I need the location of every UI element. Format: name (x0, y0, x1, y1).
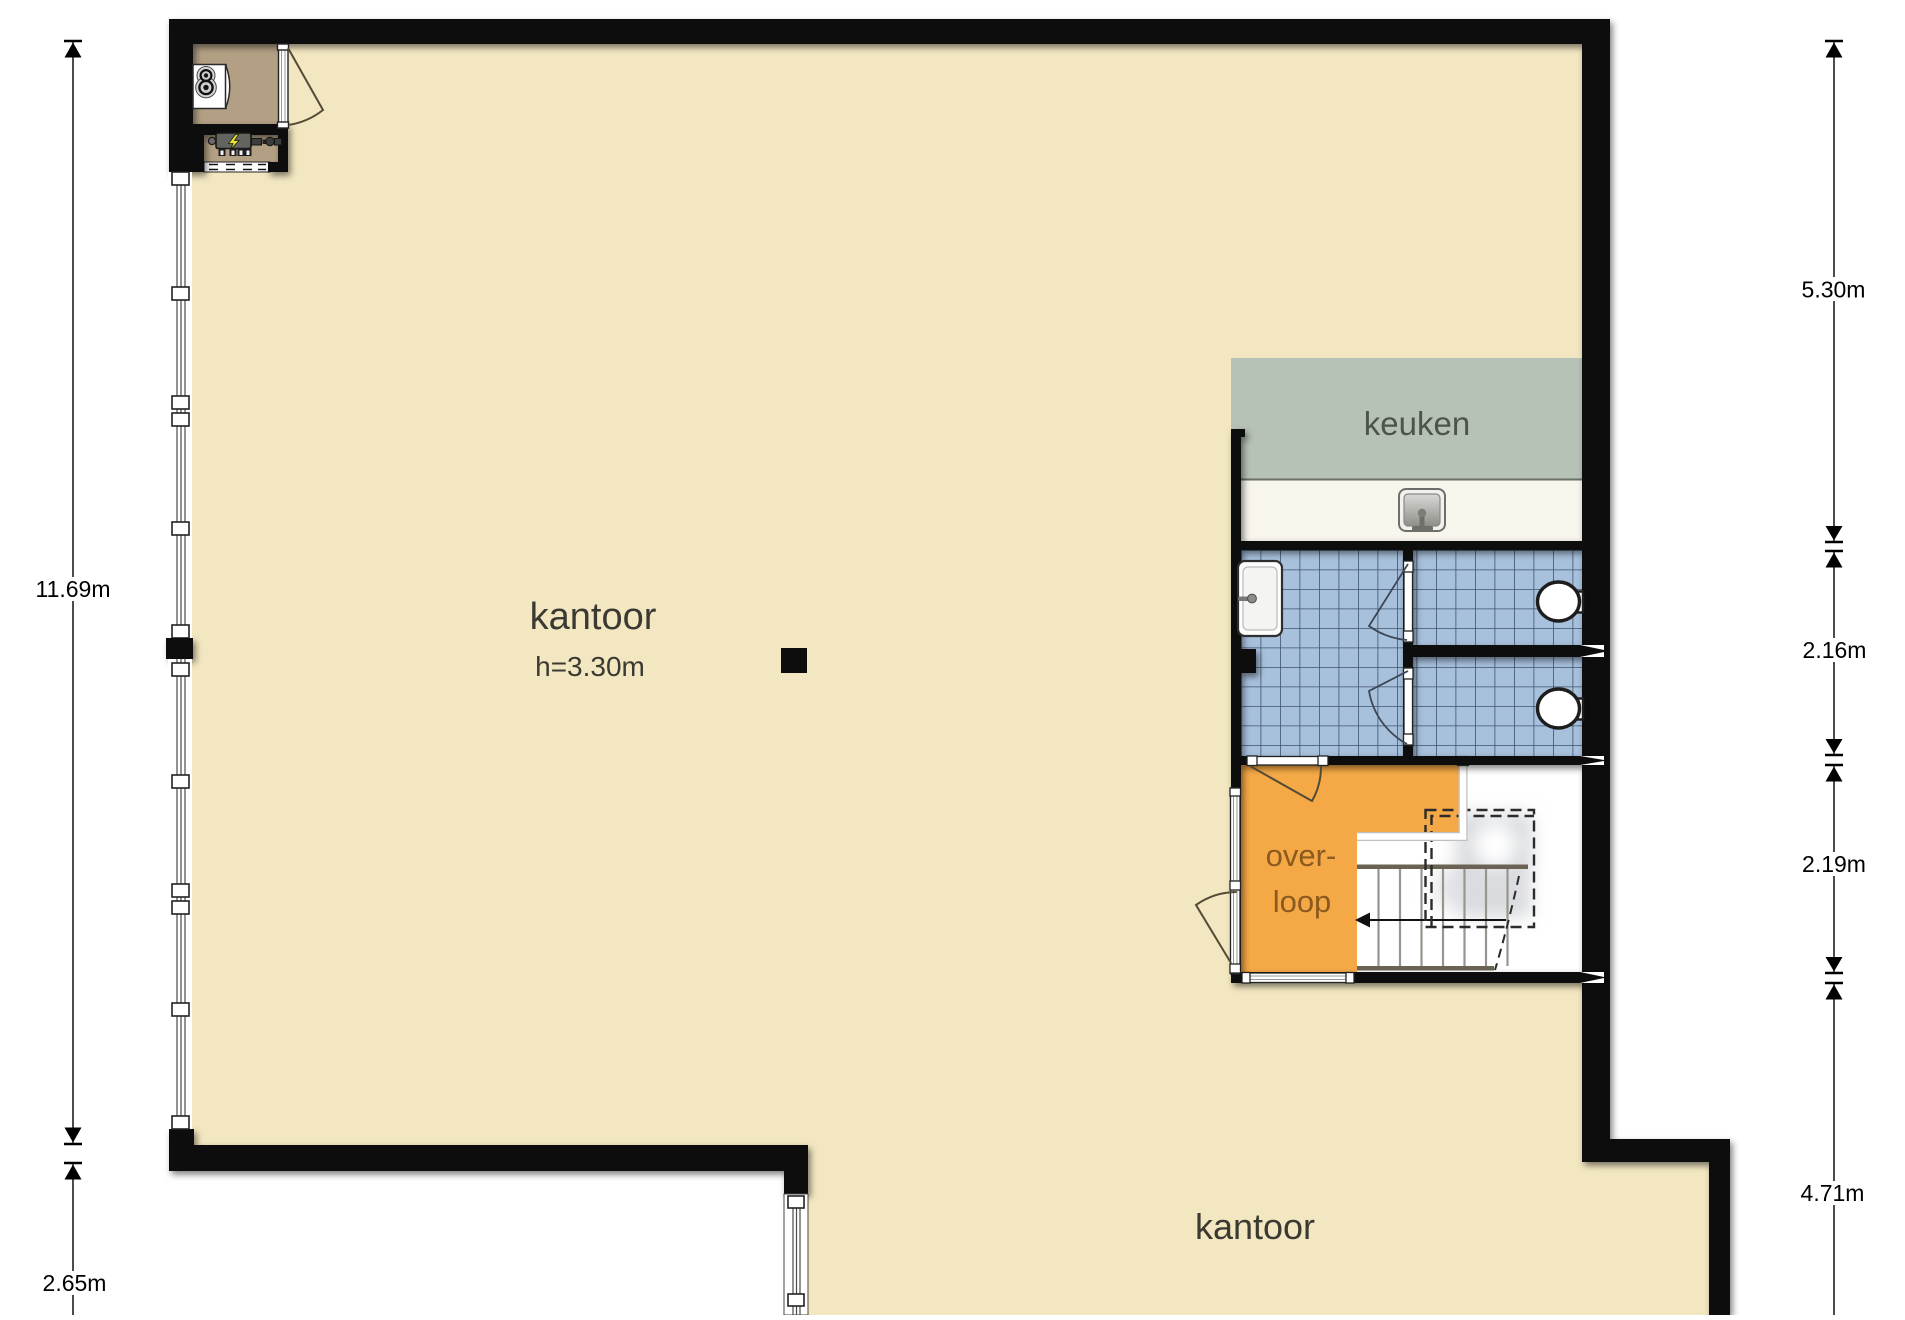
svg-text:2.19m: 2.19m (1802, 851, 1866, 877)
svg-text:4.71m: 4.71m (1801, 1180, 1865, 1206)
svg-text:kantoor: kantoor (1195, 1206, 1315, 1247)
svg-text:2.16m: 2.16m (1803, 637, 1867, 663)
svg-text:2.65m: 2.65m (43, 1270, 107, 1296)
svg-text:5.30m: 5.30m (1802, 277, 1866, 303)
svg-text:h=3.30m: h=3.30m (535, 651, 645, 682)
svg-text:loop: loop (1273, 884, 1332, 919)
svg-text:keuken: keuken (1364, 405, 1470, 442)
svg-text:11.69m: 11.69m (35, 576, 110, 602)
svg-text:over-: over- (1266, 838, 1337, 873)
svg-text:kantoor: kantoor (530, 596, 657, 638)
